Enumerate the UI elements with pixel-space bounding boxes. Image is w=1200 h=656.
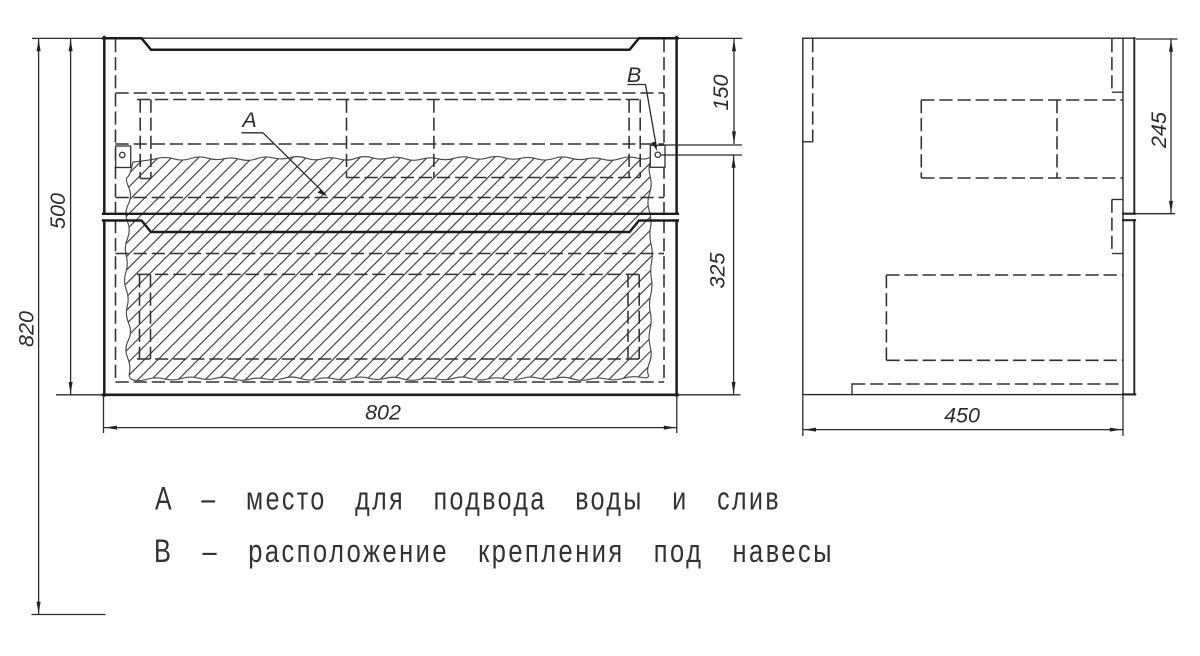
svg-text:450: 450 xyxy=(944,404,980,428)
svg-text:B – расположение крепления под: B – расположение крепления под навесы xyxy=(154,533,834,569)
svg-text:325: 325 xyxy=(706,252,730,289)
svg-text:500: 500 xyxy=(46,193,70,229)
svg-text:820: 820 xyxy=(15,311,39,347)
svg-text:150: 150 xyxy=(709,75,733,111)
svg-text:245: 245 xyxy=(1147,111,1171,149)
svg-text:802: 802 xyxy=(365,401,401,425)
svg-text:A – место для подвода воды и с: A – место для подвода воды и слив xyxy=(155,481,781,517)
svg-text:B: B xyxy=(627,63,641,87)
svg-text:A: A xyxy=(240,108,256,132)
